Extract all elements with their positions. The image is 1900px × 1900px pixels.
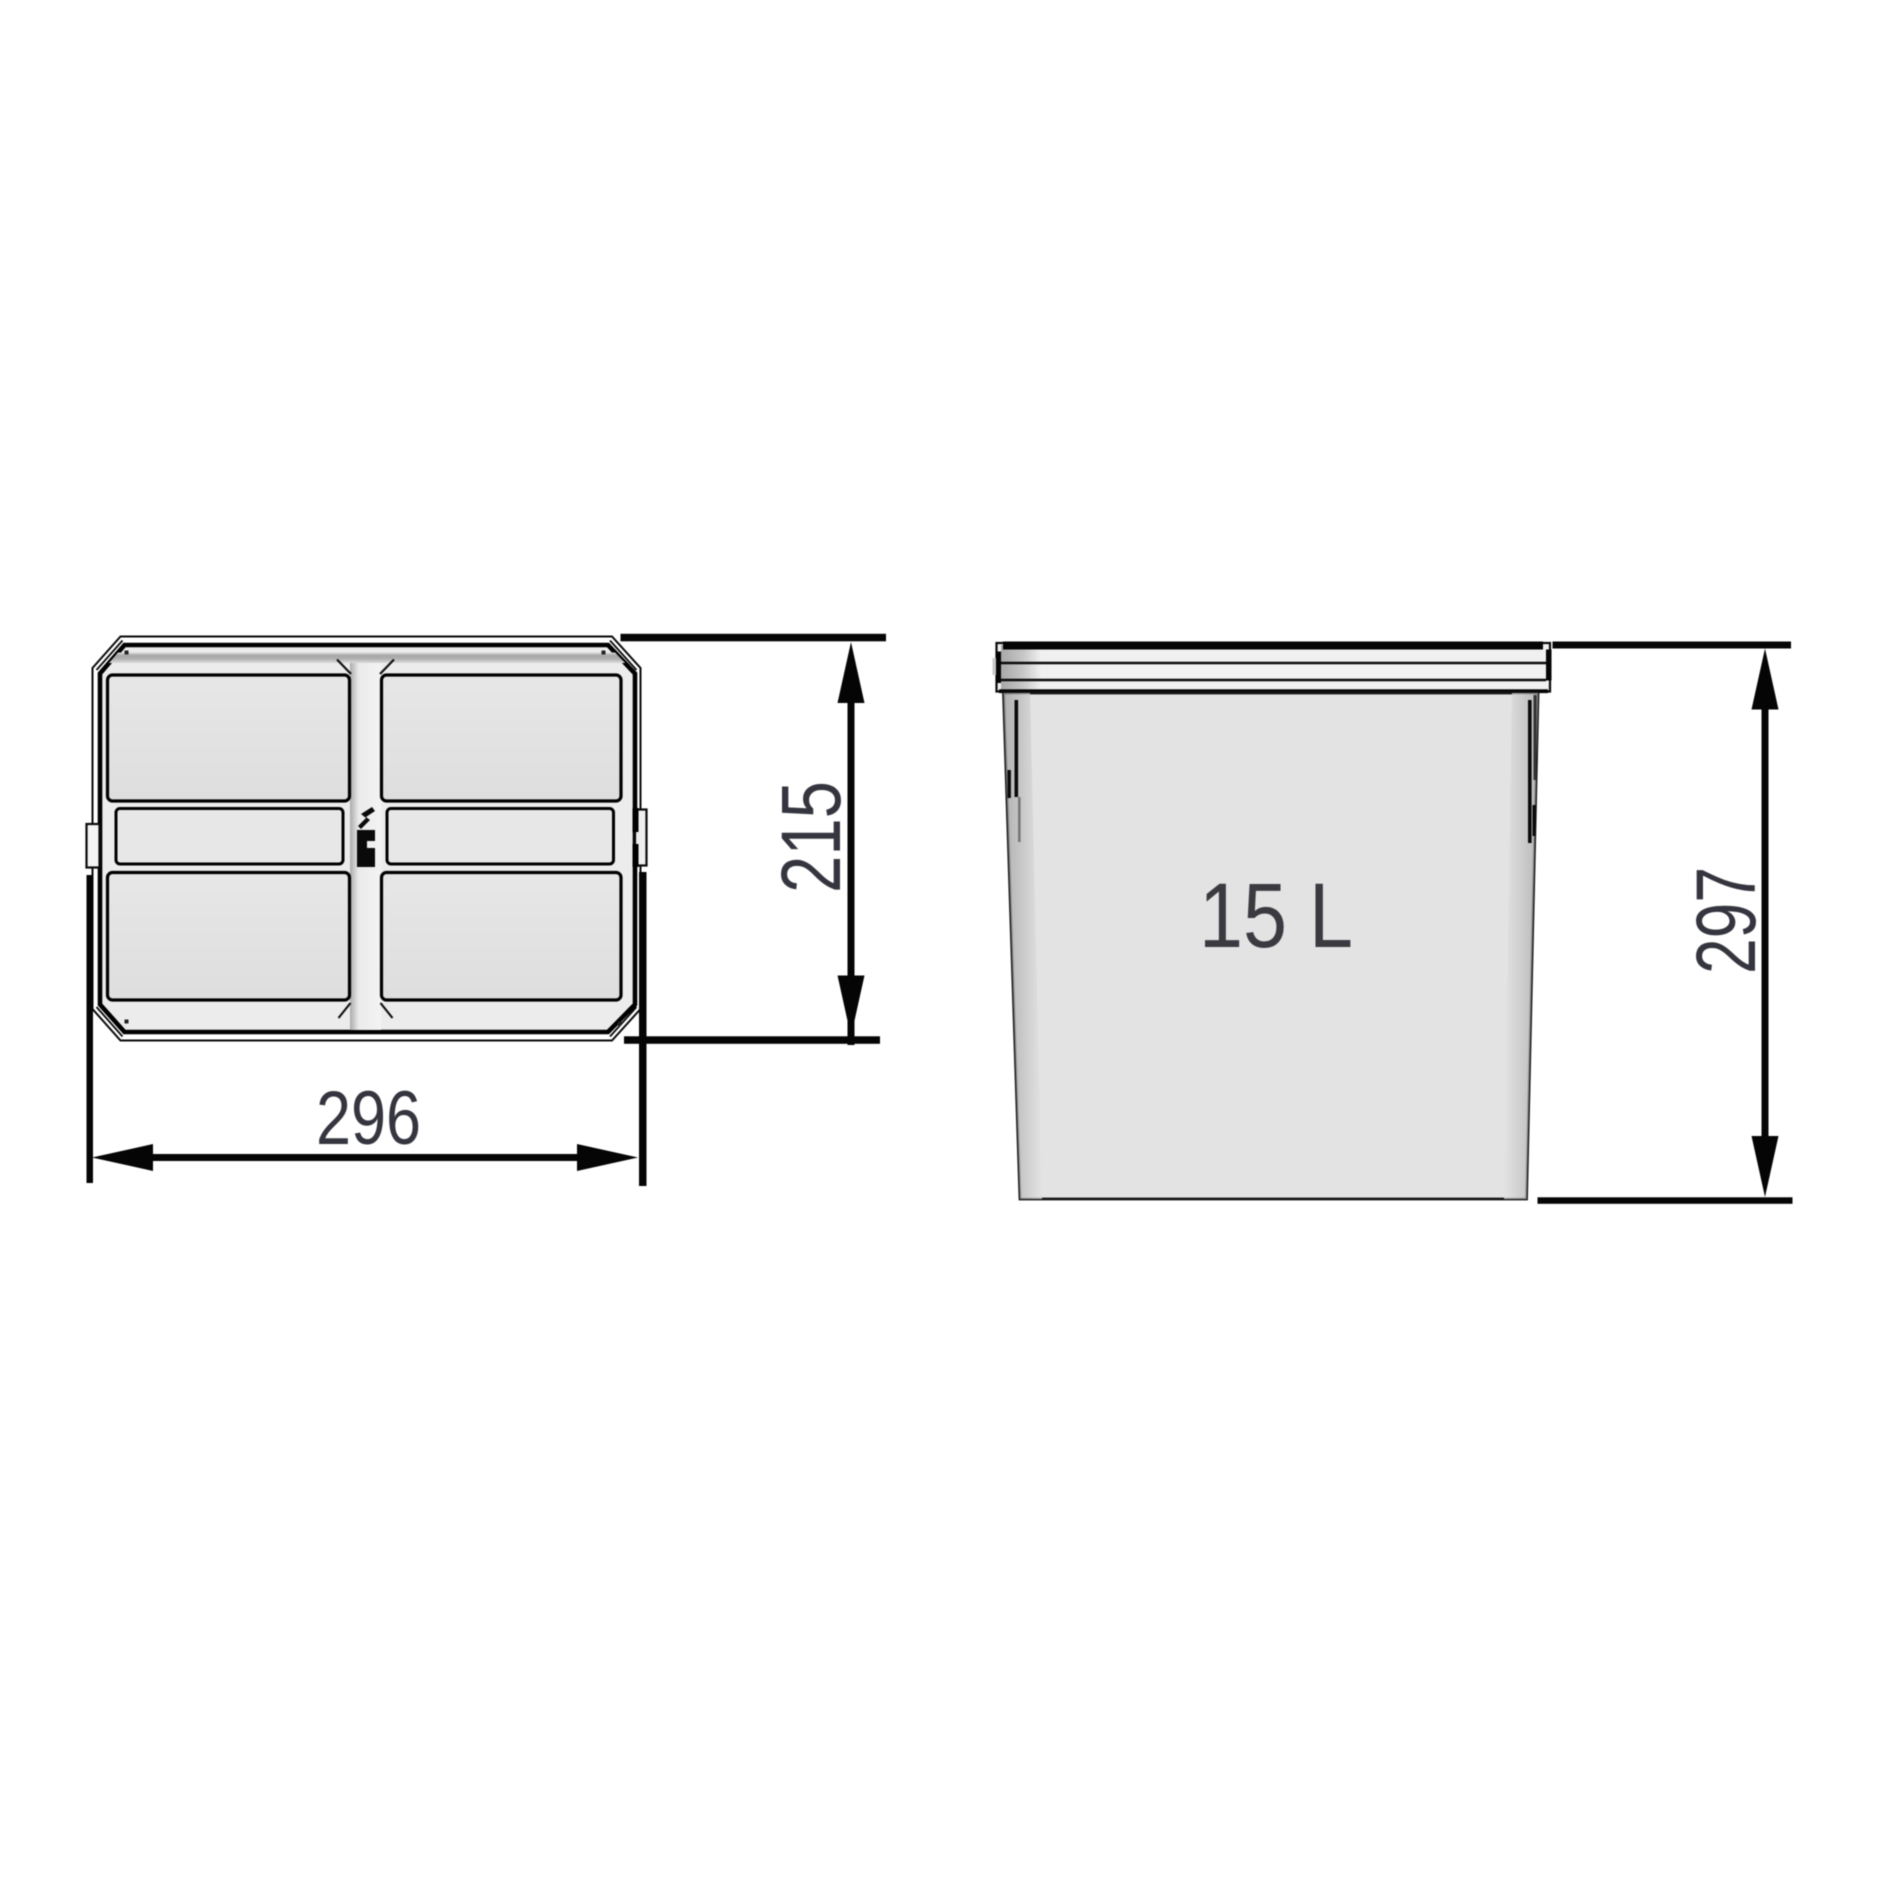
svg-text:215: 215 <box>764 781 858 893</box>
svg-text:15 L: 15 L <box>1199 865 1353 967</box>
svg-text:297: 297 <box>1679 867 1773 974</box>
svg-text:296: 296 <box>316 1076 421 1161</box>
